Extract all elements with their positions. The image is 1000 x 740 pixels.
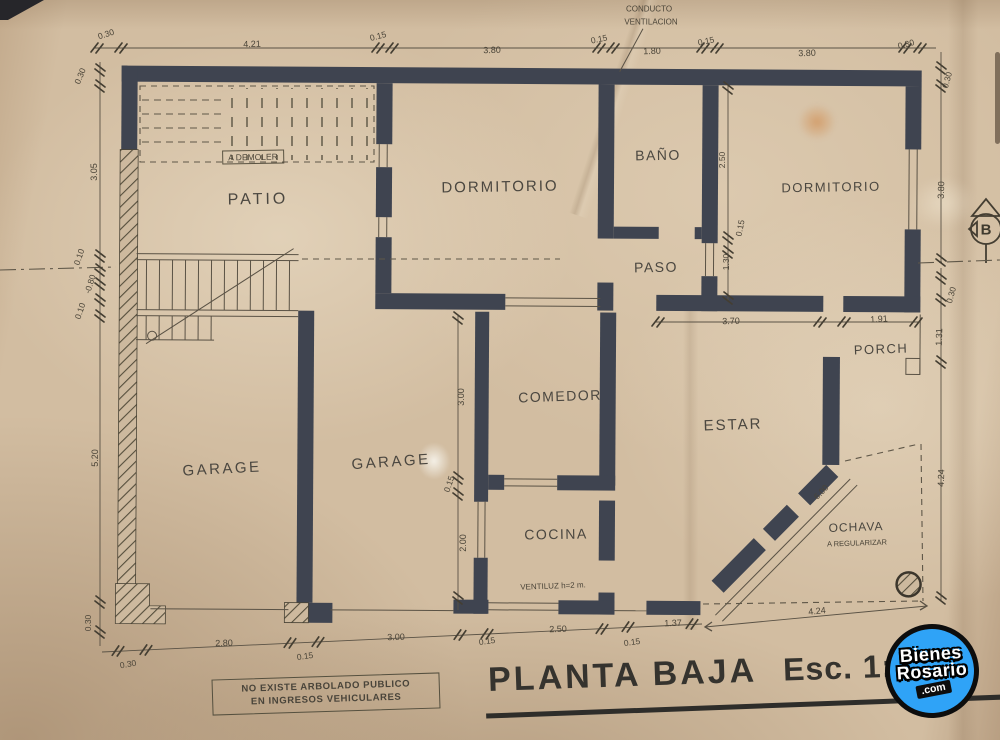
dim-int-6: 3.00: [456, 388, 466, 406]
room-estar: ESTAR: [703, 415, 762, 434]
dim-top-9: 0.30: [897, 37, 916, 51]
note-conducto-line2: VENTILACION: [624, 18, 677, 27]
dim-bottom-5: 0.15: [478, 635, 496, 647]
dim-top-2: 4.21: [243, 39, 261, 50]
dim-bottom-6: 2.50: [549, 624, 567, 635]
dim-right-5: 4.24: [936, 469, 947, 487]
dim-top-4: 3.80: [483, 45, 501, 56]
dim-top-1: 0.30: [97, 27, 116, 42]
dim-int-2: 0.15: [733, 219, 746, 237]
room-dormitorio-2: DORMITORIO: [781, 179, 881, 196]
dim-right-1: 0.30: [940, 71, 954, 90]
note-ventiluz: VENTILUZ h=2 m.: [520, 580, 586, 591]
watermark-text-suffix: .com: [915, 680, 951, 699]
room-porch: PORCH: [854, 341, 909, 358]
dim-int-7: 0.15: [442, 475, 457, 494]
dim-int-1: 2.50: [717, 152, 727, 169]
room-dormitorio-1: DORMITORIO: [441, 177, 559, 196]
dim-bottom-1: 0.30: [119, 658, 137, 671]
dim-top-3: 0.15: [369, 29, 388, 43]
note-ochava: OCHAVA: [828, 519, 883, 535]
room-patio: PATIO: [228, 190, 289, 209]
dim-top-5: 0.15: [590, 32, 608, 45]
dim-int-4: 3.70: [722, 316, 740, 327]
dim-left-2: 3.05: [89, 163, 99, 181]
dim-bottom-8: 1.37: [664, 618, 682, 629]
note-box: NO EXISTE ARBOLADO PUBLICO EN INGRESOS V…: [211, 672, 440, 715]
dim-left-1: 0.30: [72, 66, 87, 85]
dim-right-4: 1.31: [934, 328, 945, 346]
room-comedor: COMEDOR: [518, 387, 602, 406]
dim-int-8: 2.00: [458, 534, 468, 552]
scale-text: Esc. 1:: [782, 648, 893, 688]
room-paso: PASO: [634, 259, 678, 276]
dim-left-4: -0.80: [82, 273, 97, 295]
dim-right-3: 0.30: [944, 286, 958, 305]
dim-top-7: 0.15: [697, 34, 715, 47]
room-garage-2: GARAGE: [351, 451, 431, 473]
room-cocina: COCINA: [524, 525, 588, 542]
dim-int-9: 6.00: [812, 483, 831, 502]
dim-bottom-3: 0.15: [296, 650, 314, 662]
dim-int-5: 1.91: [870, 314, 888, 325]
note-conducto-line1: CONDUCTO: [626, 5, 672, 14]
dim-top-6: 1.80: [643, 46, 661, 57]
plan-label-layer: PATIODORMITORIOBAÑOPASODORMITORIOGARAGEG…: [0, 0, 1000, 740]
dim-left-6: 5.20: [90, 449, 100, 467]
dim-left-3: 0.10: [72, 248, 87, 267]
watermark-text-bottom: Rosario: [896, 661, 968, 683]
note-a-regularizar: A REGULARIZAR: [827, 537, 887, 548]
note-a-demoler: A DEMOLER: [222, 149, 284, 164]
dim-left-7: 0.30: [83, 615, 93, 632]
dim-top-8: 3.80: [798, 48, 816, 59]
dim-bottom-7: 0.15: [623, 636, 641, 648]
dim-right-2: 3.80: [936, 181, 947, 199]
room-garage-1: GARAGE: [182, 458, 262, 479]
dim-bottom-4: 3.00: [387, 632, 405, 643]
scanned-floor-plan-page: PATIODORMITORIOBAÑOPASODORMITORIOGARAGEG…: [0, 0, 1000, 740]
room-bano: BAÑO: [635, 147, 681, 164]
dim-bottom-9: 4.24: [808, 605, 826, 617]
symbol-b-letter: B: [981, 222, 992, 239]
dim-bottom-2: 2.80: [215, 638, 233, 649]
plan-title-text: PLANTA BAJA: [487, 652, 757, 699]
dim-left-5: 0.10: [73, 302, 88, 321]
dim-int-3: 1.30: [721, 254, 731, 271]
